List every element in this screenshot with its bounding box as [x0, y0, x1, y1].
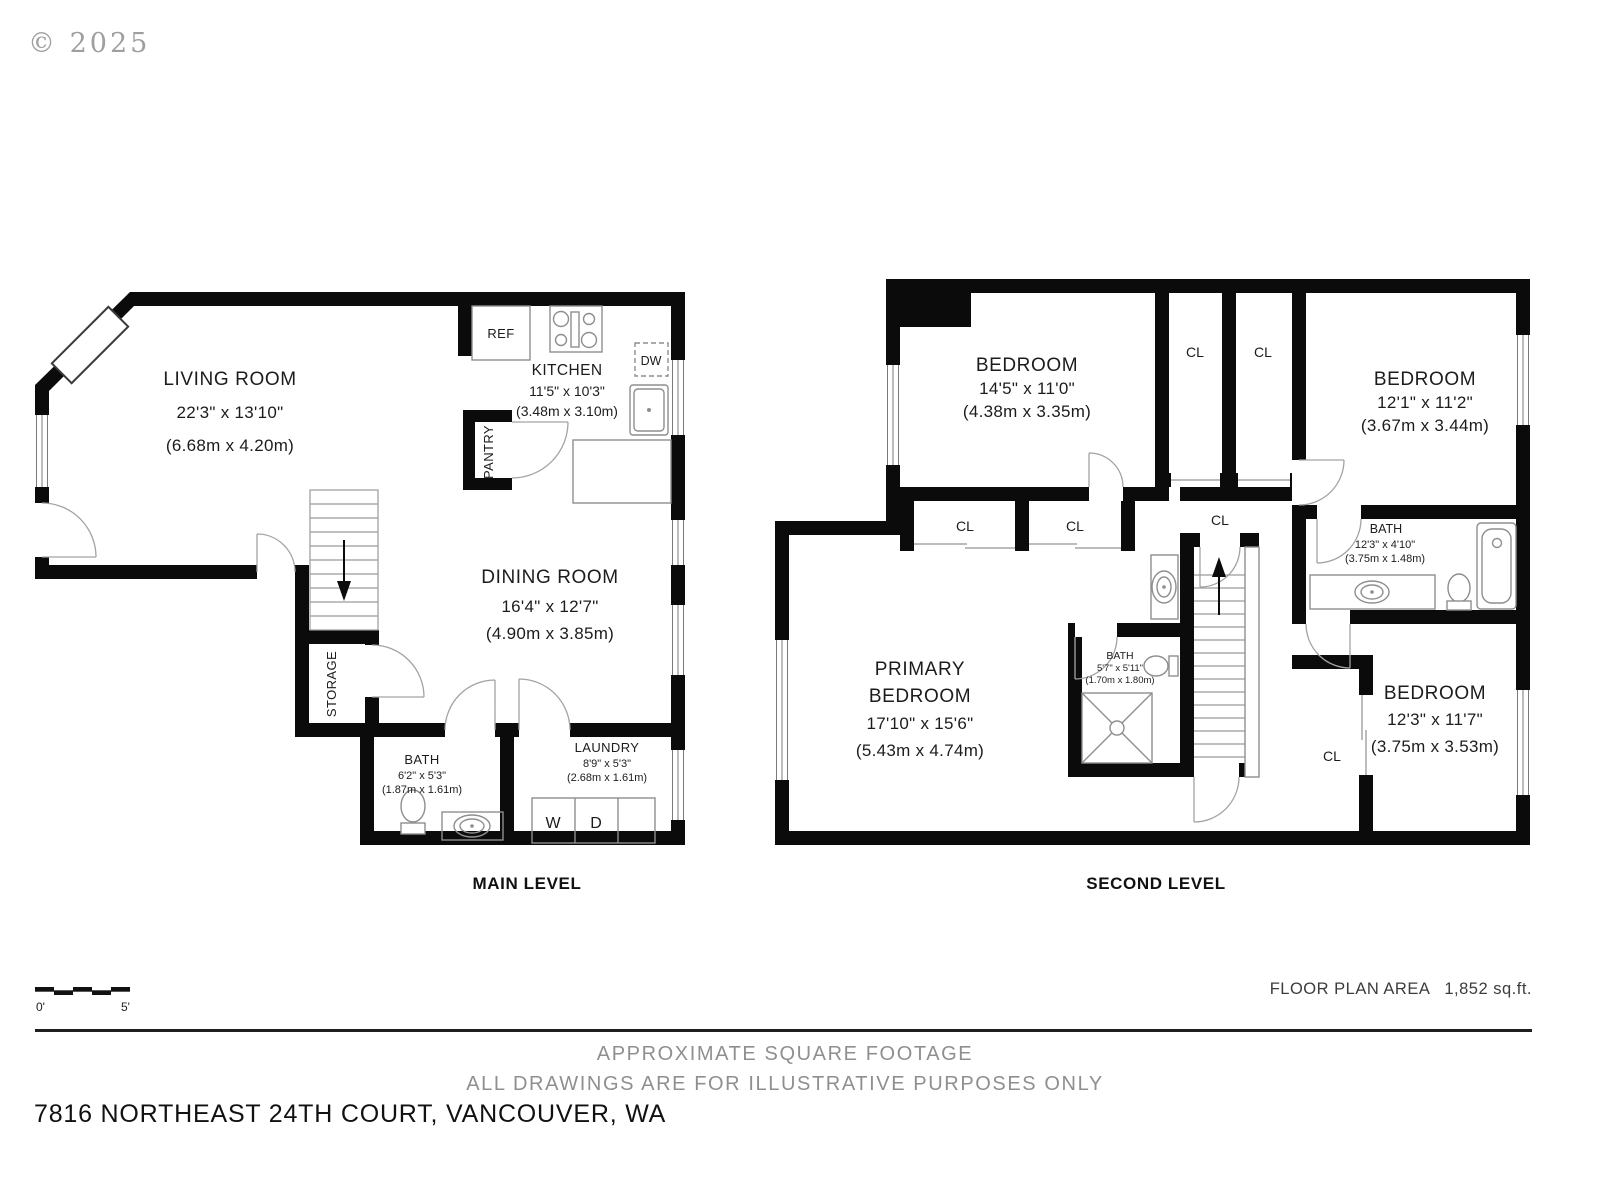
- refrigerator: REF: [472, 306, 530, 360]
- hall-bath-dims-ft: 12'3" x 4'10": [1355, 539, 1415, 551]
- kitchen-dims-m: (3.48m x 3.10m): [516, 403, 618, 419]
- laundry-name: LAUNDRY: [575, 740, 640, 755]
- bedroom1-dims-m: (4.38m x 3.35m): [963, 402, 1091, 421]
- fireplace-icon: [52, 307, 128, 383]
- bedroom2-dims-ft: 12'1" x 11'2": [1377, 393, 1473, 412]
- bedroom1-dims-ft: 14'5" x 11'0": [979, 379, 1075, 398]
- kitchen-counter: [573, 440, 671, 503]
- dining-room-dims-ft: 16'4" x 12'7": [501, 597, 598, 616]
- main-bath-dims-m: (1.87m x 1.61m): [382, 784, 462, 796]
- dining-room-dims-m: (4.90m x 3.85m): [486, 624, 614, 643]
- storage-label: STORAGE: [324, 651, 339, 717]
- copyright-watermark: © 2025: [28, 28, 150, 59]
- hall-bath-toilet-icon: [1447, 574, 1471, 610]
- laundry-label: LAUNDRY 8'9" x 5'3" (2.68m x 1.61m): [567, 740, 647, 784]
- kitchen-sink-icon: [630, 385, 668, 435]
- closet-label-4: CL: [1066, 518, 1084, 534]
- main-level-floor-plan: REF DW PANTRY STORAGE W D: [30, 285, 690, 845]
- disclaimer-line-1: APPROXIMATE SQUARE FOOTAGE: [597, 1043, 973, 1066]
- dining-room-name: DINING ROOM: [481, 567, 619, 588]
- kitchen-label: KITCHEN 11'5" x 10'3" (3.48m x 3.10m): [516, 362, 618, 419]
- stove-icon: [550, 306, 602, 352]
- main-bath-label: BATH 6'2" x 5'3" (1.87m x 1.61m): [382, 752, 462, 796]
- bedroom3-dims-m: (3.75m x 3.53m): [1371, 737, 1499, 756]
- closet-label-5: CL: [1211, 512, 1229, 528]
- shower-icon: [1082, 693, 1152, 763]
- dryer-label: D: [590, 815, 602, 832]
- living-room-label: LIVING ROOM 22'3" x 13'10" (6.68m x 4.20…: [163, 369, 296, 455]
- kitchen-dims-ft: 11'5" x 10'3": [529, 383, 605, 399]
- footer-divider: [35, 1029, 1532, 1032]
- primary-bedroom-name2: BEDROOM: [869, 686, 971, 707]
- washer-label: W: [545, 815, 561, 832]
- ref-label: REF: [487, 326, 514, 341]
- pantry-label: PANTRY: [481, 425, 496, 479]
- stair-rail: [1245, 547, 1259, 777]
- primary-bedroom-name1: PRIMARY: [875, 659, 965, 680]
- property-address: 7816 NORTHEAST 24TH COURT, VANCOUVER, WA: [34, 1100, 666, 1129]
- closet-label-3: CL: [956, 518, 974, 534]
- scale-five-label: 5': [121, 1000, 130, 1014]
- living-room-dims-ft: 22'3" x 13'10": [177, 403, 284, 422]
- closet-label-2: CL: [1254, 344, 1272, 360]
- laundry-dims-ft: 8'9" x 5'3": [583, 758, 631, 770]
- laundry-dims-m: (2.68m x 1.61m): [567, 772, 647, 784]
- bedroom2-label: BEDROOM 12'1" x 11'2" (3.67m x 3.44m): [1361, 369, 1489, 435]
- bedroom2-name: BEDROOM: [1374, 369, 1476, 390]
- living-room-dims-m: (6.68m x 4.20m): [166, 436, 294, 455]
- floor-plan-area-label: FLOOR PLAN AREA: [1270, 980, 1431, 998]
- hall-bath-dims-m: (3.75m x 1.48m): [1345, 553, 1425, 565]
- dining-room-label: DINING ROOM 16'4" x 12'7" (4.90m x 3.85m…: [481, 567, 619, 643]
- closet-label-1: CL: [1186, 344, 1204, 360]
- primary-bath-name: BATH: [1106, 650, 1133, 662]
- dishwasher: DW: [635, 343, 668, 376]
- bathtub-icon: [1477, 523, 1516, 609]
- stairs-up: [1194, 547, 1259, 777]
- primary-bath-toilet-icon: [1144, 656, 1178, 676]
- primary-vanity-sink-icon: [1151, 555, 1178, 619]
- stairs-up-arrow: [1212, 557, 1226, 577]
- main-level-caption: MAIN LEVEL: [473, 874, 582, 894]
- primary-bedroom-label: PRIMARY BEDROOM 17'10" x 15'6" (5.43m x …: [856, 659, 984, 760]
- primary-bath-dims-m: (1.70m x 1.80m): [1085, 675, 1154, 686]
- stairs-down: [310, 490, 378, 630]
- primary-bath-dims-ft: 5'7" x 5'11": [1097, 663, 1143, 674]
- scale-bar: 0' 5': [35, 985, 175, 1017]
- bedroom1-label: BEDROOM 14'5" x 11'0" (4.38m x 3.35m): [963, 355, 1091, 421]
- main-bath-name: BATH: [404, 752, 439, 767]
- dw-label: DW: [641, 354, 662, 368]
- scale-zero-label: 0': [36, 1000, 45, 1014]
- primary-bedroom-dims-m: (5.43m x 4.74m): [856, 741, 984, 760]
- floor-plan-area-value: 1,852 sq.ft.: [1444, 980, 1532, 998]
- second-level-floor-plan: BEDROOM 14'5" x 11'0" (4.38m x 3.35m) BE…: [775, 275, 1535, 850]
- living-room-name: LIVING ROOM: [163, 369, 296, 390]
- closet-label-6: CL: [1323, 748, 1341, 764]
- primary-bedroom-dims-ft: 17'10" x 15'6": [867, 714, 974, 733]
- bedroom2-dims-m: (3.67m x 3.44m): [1361, 416, 1489, 435]
- hall-bath-label: BATH 12'3" x 4'10" (3.75m x 1.48m): [1345, 522, 1425, 565]
- second-level-caption: SECOND LEVEL: [1086, 874, 1225, 894]
- main-bath-toilet-icon: [401, 790, 425, 834]
- hall-bath-name: BATH: [1370, 522, 1402, 536]
- kitchen-name: KITCHEN: [532, 362, 603, 379]
- stairs-down-arrow: [337, 581, 351, 601]
- disclaimer-line-2: ALL DRAWINGS ARE FOR ILLUSTRATIVE PURPOS…: [466, 1073, 1104, 1096]
- bedroom1-name: BEDROOM: [976, 355, 1078, 376]
- floor-plan-area: FLOOR PLAN AREA1,852 sq.ft.: [1270, 980, 1532, 999]
- bedroom3-dims-ft: 12'3" x 11'7": [1387, 710, 1483, 729]
- hall-bath-sink-icon: [1310, 575, 1435, 609]
- main-bath-dims-ft: 6'2" x 5'3": [398, 770, 446, 782]
- bedroom3-label: BEDROOM 12'3" x 11'7" (3.75m x 3.53m): [1371, 683, 1499, 756]
- bedroom3-name: BEDROOM: [1384, 683, 1486, 704]
